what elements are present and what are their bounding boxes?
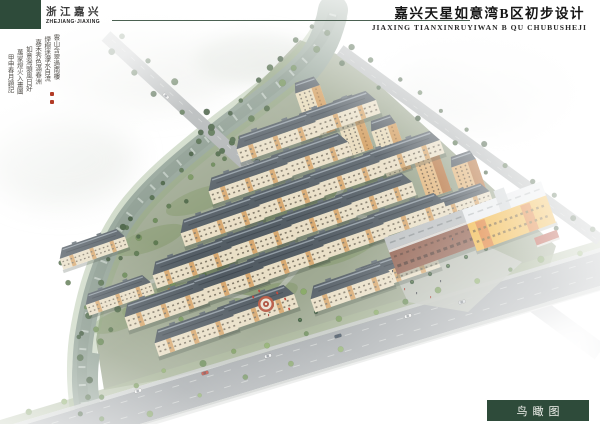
brand-color-block	[0, 0, 41, 29]
seal-stamp	[50, 92, 54, 96]
calligraphy-column: 如意灣頭風日好	[24, 34, 31, 156]
aerial-rendering	[0, 0, 600, 424]
seal-stamp	[50, 100, 54, 104]
white-fade-edges	[0, 0, 600, 424]
project-title-en: JIAXING TIANXINRUYIWAN B QU CHUBUSHEJI	[372, 23, 587, 32]
presentation-board: 浙江嘉兴 ZHEJIANG·JIAXING 嘉兴天星如意湾B区初步设计 JIAX…	[0, 0, 600, 424]
view-label-text: 鸟瞰图	[517, 403, 565, 419]
calligraphy-column: 嘉禾秀色滿春洲	[33, 34, 40, 156]
location-title-en: ZHEJIANG·JIAXING	[46, 19, 100, 25]
project-title-cn: 嘉兴天星如意湾B区初步设计	[394, 2, 585, 22]
calligraphy-column: 煙樹迷濛水自流	[43, 34, 50, 156]
calligraphy-column: 萬家燈火入畫圖	[15, 34, 22, 156]
calligraphy-column: 甲申春月題記	[6, 34, 13, 156]
location-title-cn: 浙江嘉兴	[46, 4, 102, 19]
view-label-badge: 鸟瞰图	[487, 400, 589, 421]
